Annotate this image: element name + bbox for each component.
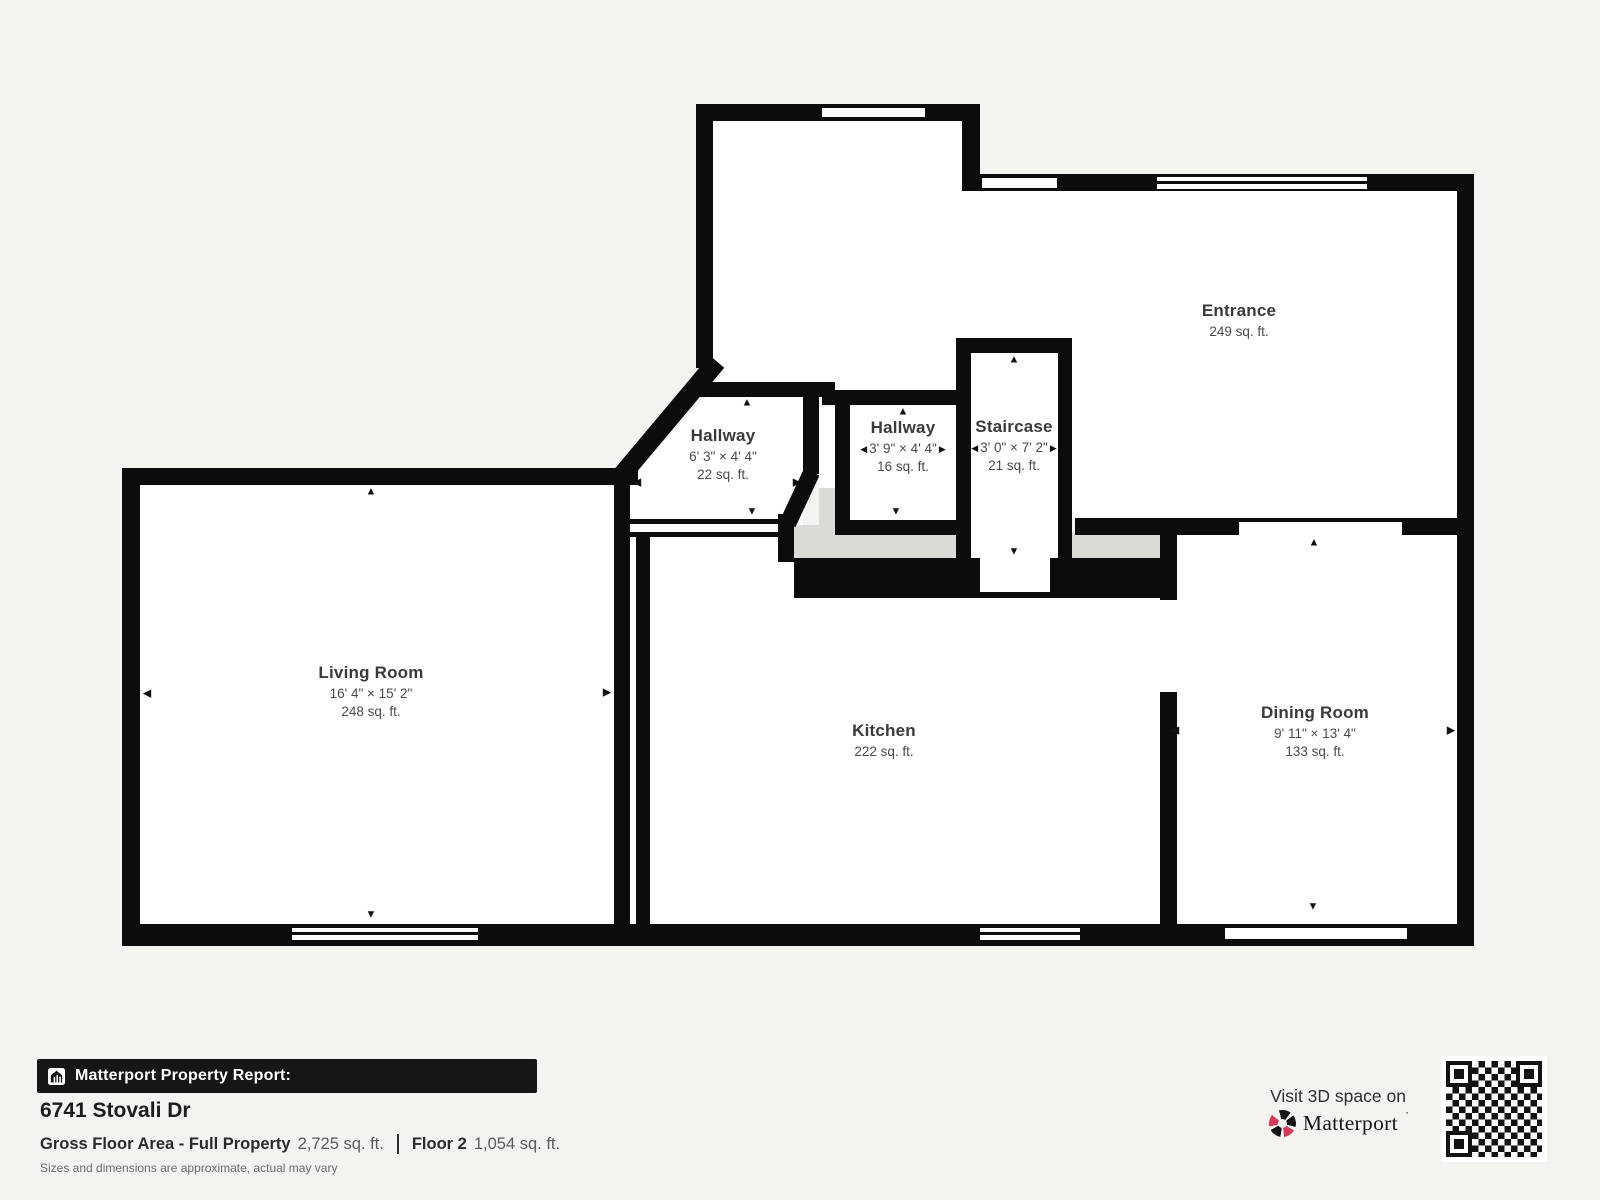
floor-plan-page: ▲ ▼ ◀ ▶ ▲ ▼ ◀ ▶ ▲ ▼ ▲ ▼ ▲ ▼ ◀ ▶ Entrance…	[0, 0, 1600, 1200]
room-dims-text: 3' 9" × 4' 4"	[869, 441, 937, 456]
qr-finder-top-right	[1516, 1061, 1542, 1087]
door-opening	[1158, 600, 1179, 692]
floor-label: Floor 2	[412, 1135, 467, 1154]
wall-segment	[122, 468, 140, 946]
dim-arrow-up-icon: ▲	[898, 407, 909, 418]
gross-floor-area-value: 2,725 sq. ft.	[298, 1135, 384, 1154]
window-symbol	[982, 178, 1057, 188]
threshold-line	[630, 532, 781, 537]
room-label-living-room: Living Room 16' 4" × 15' 2" 248 sq. ft.	[318, 663, 423, 719]
matterport-logo-icon	[1269, 1110, 1296, 1137]
wall-segment	[696, 104, 713, 368]
room-area: 16 sq. ft.	[858, 459, 948, 474]
room-dims: ◀3' 0" × 7' 2"▶	[969, 440, 1059, 455]
room-area: 249 sq. ft.	[1202, 324, 1276, 339]
entrance-upper-floor	[710, 121, 962, 392]
interior-gray-zone	[1072, 533, 1160, 558]
room-dims-text: 3' 0" × 7' 2"	[980, 440, 1048, 455]
window-symbol	[822, 108, 925, 117]
room-name: Entrance	[1202, 301, 1276, 321]
dim-arrow-right-icon: ▶	[603, 688, 611, 699]
qr-pattern	[1446, 1061, 1542, 1157]
dim-arrow-down-icon: ▼	[891, 507, 902, 518]
visit-3d-text: Visit 3D space on	[1250, 1086, 1426, 1107]
wall-segment	[1457, 174, 1474, 946]
room-label-kitchen: Kitchen 222 sq. ft.	[852, 721, 916, 759]
qr-code	[1441, 1056, 1547, 1162]
dim-arrow-down-icon: ▼	[366, 910, 377, 921]
wall-segment	[1160, 518, 1177, 924]
room-name: Hallway	[689, 426, 757, 446]
room-name: Staircase	[969, 417, 1059, 437]
dim-arrow-left-icon: ◀	[633, 478, 641, 489]
room-label-staircase: Staircase ◀3' 0" × 7' 2"▶ 21 sq. ft.	[969, 417, 1059, 473]
disclaimer-note: Sizes and dimensions are approximate, ac…	[40, 1161, 337, 1175]
room-area: 248 sq. ft.	[318, 704, 423, 719]
wall-segment	[1075, 518, 1160, 535]
wide-opening	[1239, 522, 1402, 535]
dim-arrow-up-icon: ▲	[1009, 355, 1020, 366]
dim-arrow-up-icon: ▲	[742, 398, 753, 409]
room-label-dining-room: Dining Room 9' 11" × 13' 4" 133 sq. ft.	[1261, 703, 1369, 759]
room-area: 22 sq. ft.	[689, 467, 757, 482]
window-symbol-line	[292, 932, 478, 935]
door-opening	[819, 407, 835, 488]
dim-arrow-right-icon: ▶	[1050, 443, 1057, 453]
dim-arrow-right-icon: ▶	[1447, 726, 1455, 737]
room-area: 21 sq. ft.	[969, 458, 1059, 473]
property-address: 6741 Stovali Dr	[40, 1099, 191, 1123]
wall-segment	[778, 514, 794, 562]
room-dims: 9' 11" × 13' 4"	[1261, 726, 1369, 741]
room-dims: 6' 3" × 4' 4"	[689, 449, 757, 464]
matterport-brand-row: Matterport ’	[1250, 1110, 1426, 1137]
wall-segment	[636, 537, 650, 924]
matterport-wordmark: Matterport	[1303, 1111, 1398, 1136]
room-dims: ◀3' 9" × 4' 4"▶	[858, 441, 948, 456]
dim-arrow-down-icon: ▼	[1009, 547, 1020, 558]
dim-arrow-up-icon: ▲	[1309, 538, 1320, 549]
room-name: Living Room	[318, 663, 423, 683]
room-label-hallway-1: Hallway 6' 3" × 4' 4" 22 sq. ft.	[689, 426, 757, 482]
room-name: Kitchen	[852, 721, 916, 741]
room-area: 222 sq. ft.	[852, 744, 916, 759]
dim-arrow-left-icon: ◀	[860, 444, 867, 454]
house-icon	[48, 1068, 65, 1085]
dim-arrow-right-icon: ▶	[939, 444, 946, 454]
dim-arrow-left-icon: ◀	[1171, 726, 1179, 737]
dim-arrow-left-icon: ◀	[971, 443, 978, 453]
qr-finder-top-left	[1446, 1061, 1472, 1087]
window-symbol	[1225, 928, 1407, 939]
dim-arrow-up-icon: ▲	[366, 487, 377, 498]
room-label-hallway-2: Hallway ◀3' 9" × 4' 4"▶ 16 sq. ft.	[858, 418, 948, 474]
wall-segment	[803, 382, 819, 474]
room-dims: 16' 4" × 15' 2"	[318, 686, 423, 701]
room-name: Hallway	[858, 418, 948, 438]
room-area: 133 sq. ft.	[1261, 744, 1369, 759]
dim-arrow-left-icon: ◀	[143, 689, 151, 700]
wall-segment	[122, 468, 638, 485]
dim-arrow-down-icon: ▼	[747, 507, 758, 518]
report-title-bar: Matterport Property Report:	[37, 1059, 537, 1093]
wall-segment	[614, 468, 630, 924]
interior-gray-zone	[819, 486, 835, 528]
threshold-line	[630, 519, 781, 524]
floor-area-summary: Gross Floor Area - Full Property 2,725 s…	[40, 1134, 560, 1154]
vertical-divider	[397, 1134, 399, 1154]
gross-floor-area-label: Gross Floor Area - Full Property	[40, 1135, 291, 1154]
window-symbol-line	[1157, 181, 1367, 184]
dim-arrow-down-icon: ▼	[1308, 902, 1319, 913]
room-label-entrance: Entrance 249 sq. ft.	[1202, 301, 1276, 339]
trademark-tick: ’	[1406, 1111, 1408, 1122]
report-bar-title: Matterport Property Report:	[75, 1067, 291, 1085]
stair-exit-opening	[980, 558, 1050, 592]
window-symbol-line	[980, 932, 1080, 935]
wall-segment	[794, 558, 1160, 598]
floor-value: 1,054 sq. ft.	[474, 1135, 560, 1154]
room-name: Dining Room	[1261, 703, 1369, 723]
qr-finder-bottom-left	[1446, 1131, 1472, 1157]
dim-arrow-right-icon: ▶	[793, 478, 801, 489]
